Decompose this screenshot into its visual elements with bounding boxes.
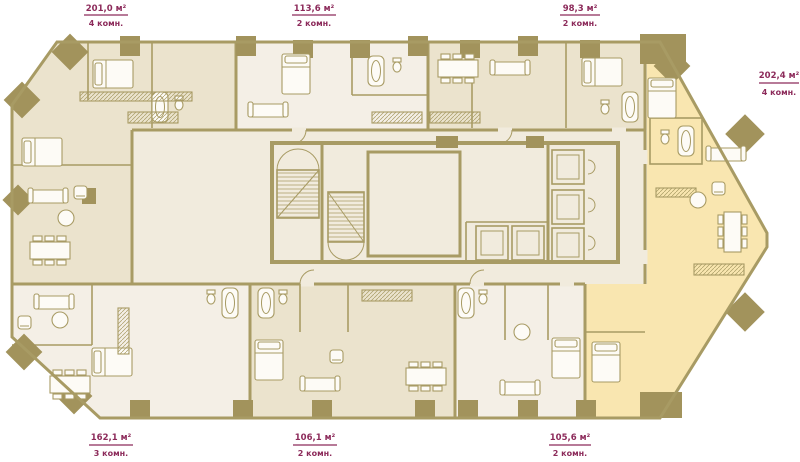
toilet bbox=[661, 130, 669, 144]
round-table bbox=[58, 210, 74, 226]
apartment-rooms[interactable]: 4 комн. bbox=[89, 19, 123, 28]
toilet bbox=[279, 290, 287, 304]
kitchen-counter bbox=[372, 112, 422, 123]
apartment-label-top-left[interactable]: 201,0 м² 4 комн. bbox=[84, 4, 128, 28]
sofa bbox=[34, 294, 74, 309]
armchair bbox=[18, 316, 31, 329]
kitchen-counter bbox=[430, 112, 480, 123]
bathtub bbox=[258, 288, 274, 318]
dining-table bbox=[30, 236, 70, 265]
kitchen-counter bbox=[362, 290, 412, 301]
sofa bbox=[500, 380, 540, 395]
bed bbox=[255, 340, 283, 380]
bed bbox=[93, 60, 133, 88]
bed bbox=[648, 78, 676, 118]
bed bbox=[582, 58, 622, 86]
toilet bbox=[479, 290, 487, 304]
dining-table bbox=[50, 370, 90, 399]
sofa bbox=[300, 376, 340, 391]
floorplan: 201,0 м² 4 комн. 113,6 м² 2 комн. 98,3 м… bbox=[0, 0, 800, 462]
toilet bbox=[601, 100, 609, 114]
kitchen-counter bbox=[118, 308, 129, 354]
armchair bbox=[712, 182, 725, 195]
sofa bbox=[248, 102, 288, 117]
apartment-area[interactable]: 201,0 м² bbox=[86, 4, 127, 14]
toilet bbox=[393, 58, 401, 72]
armchair bbox=[330, 350, 343, 363]
kitchen-counter bbox=[128, 112, 178, 123]
round-table bbox=[52, 312, 68, 328]
bed bbox=[282, 54, 310, 94]
bathtub bbox=[368, 56, 384, 86]
apartment-area[interactable]: 105,6 м² bbox=[550, 433, 591, 443]
apartment-rooms[interactable]: 2 комн. bbox=[298, 449, 332, 458]
bed bbox=[22, 138, 62, 166]
kitchen-counter bbox=[694, 264, 744, 275]
bed bbox=[592, 342, 620, 382]
apartment-area[interactable]: 202,4 м² bbox=[759, 71, 800, 81]
apartment-area[interactable]: 162,1 м² bbox=[91, 433, 132, 443]
apartment-rooms[interactable]: 2 комн. bbox=[297, 19, 331, 28]
apartment-label-top-middle[interactable]: 113,6 м² 2 комн. bbox=[292, 4, 336, 28]
bathtub bbox=[678, 126, 694, 156]
dining-table bbox=[438, 54, 478, 83]
apartment-label-bottom-middle[interactable]: 106,1 м² 2 комн. bbox=[293, 433, 337, 458]
wardrobe bbox=[80, 92, 192, 101]
dining-table bbox=[406, 362, 446, 391]
bathtub bbox=[458, 288, 474, 318]
apartment-label-bottom-left[interactable]: 162,1 м² 3 комн. bbox=[89, 433, 133, 458]
apartment-rooms[interactable]: 3 комн. bbox=[94, 449, 128, 458]
apartment-rooms[interactable]: 4 комн. bbox=[762, 88, 796, 97]
apartment-label-right[interactable]: 202,4 м² 4 комн. bbox=[759, 71, 800, 97]
apartment-area[interactable]: 113,6 м² bbox=[294, 4, 335, 14]
armchair bbox=[74, 186, 87, 199]
apartment-label-bottom-right[interactable]: 105,6 м² 2 комн. bbox=[549, 433, 591, 458]
toilet bbox=[207, 290, 215, 304]
apartment-label-top-right[interactable]: 98,3 м² 2 комн. bbox=[560, 4, 600, 28]
apartment-area[interactable]: 98,3 м² bbox=[563, 4, 598, 14]
bathtub bbox=[622, 92, 638, 122]
round-table bbox=[690, 192, 706, 208]
sofa bbox=[490, 60, 530, 75]
dining-table bbox=[718, 212, 747, 252]
wardrobe bbox=[656, 188, 696, 197]
bathtub bbox=[222, 288, 238, 318]
apartment-area[interactable]: 106,1 м² bbox=[295, 433, 336, 443]
round-table bbox=[514, 324, 530, 340]
apartment-rooms[interactable]: 2 комн. bbox=[553, 449, 587, 458]
apartment-rooms[interactable]: 2 комн. bbox=[563, 19, 597, 28]
bed bbox=[552, 338, 580, 378]
sofa bbox=[28, 188, 68, 203]
